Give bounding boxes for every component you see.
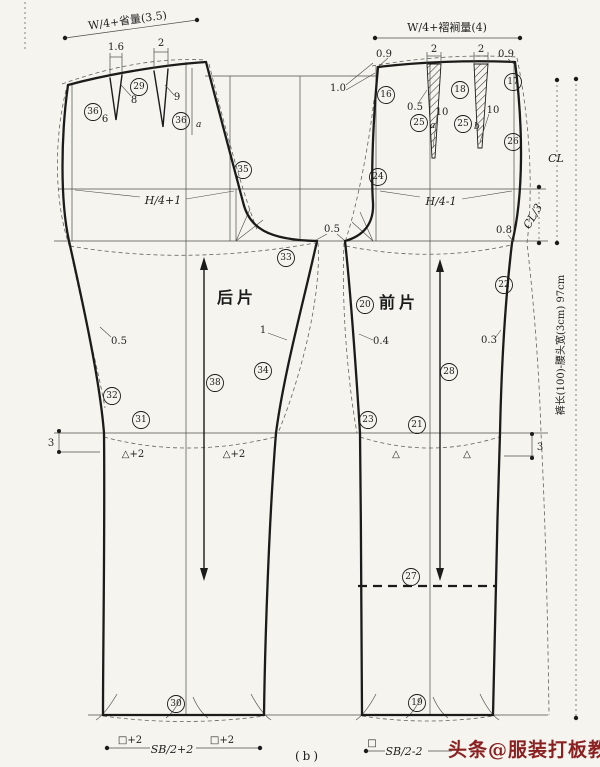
dim-dot — [537, 185, 541, 189]
right-dimensions: CL CL/3 裤长(100)-腰头宽(3cm) 97cm — [521, 77, 578, 720]
marker-30: 30 — [168, 696, 185, 713]
dim-dot — [574, 77, 578, 81]
marker-33: 33 — [278, 250, 295, 267]
front-seat-curve — [346, 245, 511, 254]
svg-text:38: 38 — [209, 378, 221, 388]
back-piece-label: 后片 — [217, 288, 257, 307]
back-piece — [63, 62, 318, 715]
knee-up-left: 3 — [48, 438, 54, 449]
svg-text:30: 30 — [170, 699, 182, 709]
step-markers-front: 16 18 17 25 a 25 b 26 24 20 22 28 23 21 … — [357, 74, 522, 712]
marker-18: 18 — [452, 82, 469, 99]
dim-dot — [57, 450, 61, 454]
marker-23: 23 — [360, 412, 377, 429]
back-side-seam — [63, 85, 105, 715]
front-hem-curve — [362, 716, 493, 721]
front-inseam-in: 0.4 — [373, 336, 389, 347]
pleat1-depth: 10 — [436, 107, 449, 118]
marker-25a: 25 — [411, 115, 428, 132]
point-a-front: a — [430, 121, 435, 131]
svg-text:23: 23 — [362, 415, 374, 425]
dim-dot — [105, 746, 109, 750]
back-hem-side-r: □+2 — [210, 735, 234, 746]
svg-text:36: 36 — [87, 107, 99, 117]
svg-text:31: 31 — [135, 415, 146, 425]
watermark: 头条@服装打板教程 — [448, 738, 600, 761]
svg-text:25: 25 — [413, 118, 425, 128]
svg-text:17: 17 — [507, 77, 519, 87]
back-grain-arrowhead-up — [200, 257, 208, 270]
front-knee-curve — [360, 437, 499, 448]
svg-text:34: 34 — [257, 366, 269, 376]
back-inseam-guide — [278, 243, 318, 433]
marker-16: 16 — [378, 87, 395, 104]
svg-text:21: 21 — [411, 420, 422, 430]
dim-dot — [530, 432, 534, 436]
back-dart1-width: 1.6 — [108, 42, 124, 53]
back-crotch-diagonal-1 — [236, 220, 263, 241]
svg-text:32: 32 — [106, 391, 117, 401]
leader-front-hip-r — [462, 191, 512, 199]
trouser-pattern-diagram: W/4+省量(3.5) W/4+褶裥量(4) — [0, 0, 600, 767]
pleat1-width: 2 — [431, 44, 437, 55]
front-grain-arrow — [436, 259, 444, 581]
leader-front-inseam — [359, 334, 373, 340]
front-piece-label: 前片 — [379, 293, 419, 312]
leader-back-side — [100, 327, 111, 337]
crotch-gap: 0.5 — [324, 224, 340, 235]
front-waist-seam — [378, 61, 515, 67]
marker-19: 19 — [409, 695, 426, 712]
figure-caption: (b) — [295, 749, 321, 763]
svg-text:35: 35 — [237, 165, 249, 175]
front-crotch-guide — [346, 100, 374, 239]
step-markers-back: 29 36 36 35 33 34 38 32 31 30 — [85, 79, 295, 713]
back-knee-curve — [104, 437, 275, 448]
pleat-offset: 0.5 — [407, 102, 423, 113]
marker-36-right: 36 — [173, 113, 190, 130]
svg-text:27: 27 — [405, 572, 417, 582]
leader-back-inseam — [268, 333, 287, 340]
front-inseam — [345, 241, 362, 715]
front-waist-dimension: W/4+褶裥量(4) — [373, 20, 522, 40]
svg-text:22: 22 — [498, 280, 509, 290]
back-seat-curve — [70, 243, 315, 255]
front-grain-arrowhead-down — [436, 568, 444, 581]
dashed-guides — [57, 56, 549, 721]
marker-25b: 25 — [455, 116, 472, 133]
front-piece — [345, 61, 521, 715]
back-dart2-depth: 9 — [174, 92, 180, 103]
svg-text:29: 29 — [133, 82, 145, 92]
dim-dot — [364, 749, 368, 753]
front-drop-left: 0.9 — [376, 49, 392, 60]
value-labels: 1.6 2 8 9 6 a 0.9 0.9 2 2 1.0 0.5 10 10 … — [48, 38, 543, 453]
back-dart1-depth: 8 — [131, 95, 137, 106]
leader-back-hip-r — [186, 191, 234, 199]
svg-text:25: 25 — [457, 119, 469, 129]
front-hip-formula: H/4-1 — [424, 195, 456, 208]
hem-dimensions: □+2 SB/2+2 □+2 □ SB/2-2 — [105, 735, 452, 758]
back-hem-side-l: □+2 — [118, 735, 142, 746]
front-waist-formula: W/4+褶裥量(4) — [407, 20, 487, 34]
leader-front-hip-l — [380, 191, 420, 197]
marker-28: 28 — [441, 364, 458, 381]
marker-17: 17 — [505, 74, 522, 91]
back-waist-formula: W/4+省量(3.5) — [87, 9, 167, 33]
front-side-crotch: 0.8 — [496, 225, 512, 236]
front-grain-arrowhead-up — [436, 259, 444, 272]
marker-38: 38 — [207, 375, 224, 392]
back-dart1-pos: 6 — [102, 114, 108, 125]
pleat2-width: 2 — [478, 44, 484, 55]
back-grain-arrowhead-down — [200, 568, 208, 581]
leader-0p5-pleat — [419, 90, 427, 102]
front-hem-side: □ — [367, 738, 376, 749]
back-hem-curve — [103, 716, 264, 722]
dim-dot — [555, 78, 559, 82]
knee-up-right: 3 — [537, 442, 543, 453]
svg-text:16: 16 — [380, 90, 392, 100]
marker-32: 32 — [104, 388, 121, 405]
front-knee-seg-r: △ — [463, 449, 471, 460]
marker-36-left: 36 — [85, 104, 102, 121]
back-dart-1 — [110, 75, 122, 120]
front-drop-right: 0.9 — [498, 49, 514, 60]
front-knee-seg-l: △ — [392, 449, 400, 460]
back-dart2-width: 2 — [158, 38, 164, 49]
trouser-length-label: 裤长(100)-腰头宽(3cm) 97cm — [554, 274, 567, 415]
marker-27: 27 — [403, 569, 420, 586]
back-cb-guide — [209, 64, 258, 232]
cl-label: CL — [548, 152, 564, 165]
marker-34: 34 — [255, 363, 272, 380]
front-hem-center: SB/2-2 — [385, 745, 422, 758]
svg-text:20: 20 — [359, 300, 371, 310]
dim-dot — [195, 18, 199, 22]
marker-21: 21 — [409, 417, 426, 434]
back-hem-center: SB/2+2 — [151, 743, 194, 756]
point-a-back: a — [196, 120, 201, 130]
back-dart-2 — [154, 69, 168, 127]
leader-1p0-a — [346, 63, 373, 85]
point-b-front: b — [474, 122, 480, 132]
marker-29: 29 — [131, 79, 148, 96]
svg-text:28: 28 — [443, 367, 455, 377]
back-inseam-in: 1 — [260, 325, 266, 336]
back-side-in: 0.5 — [111, 336, 127, 347]
marker-26: 26 — [505, 134, 522, 151]
dim-dot — [373, 36, 377, 40]
side-raise: 1.0 — [330, 83, 346, 94]
dim-dot — [63, 36, 67, 40]
dim-dot — [574, 716, 578, 720]
back-knee-seg-l: △+2 — [122, 449, 144, 460]
leader-back-hip-l — [75, 190, 140, 197]
marker-24: 24 — [370, 169, 387, 186]
svg-text:36: 36 — [175, 116, 187, 126]
dim-dot — [518, 36, 522, 40]
svg-text:26: 26 — [507, 137, 519, 147]
marker-35: 35 — [235, 162, 252, 179]
back-side-guide — [57, 90, 105, 408]
dim-dot — [57, 429, 61, 433]
svg-text:18: 18 — [454, 85, 466, 95]
front-inseam-guide — [343, 243, 357, 433]
back-hip-formula: H/4+1 — [144, 194, 182, 207]
dim-dot — [537, 241, 541, 245]
svg-text:24: 24 — [372, 172, 384, 182]
back-waist-dimension: W/4+省量(3.5) — [63, 9, 199, 41]
pleat2-depth: 10 — [487, 105, 500, 116]
marker-22: 22 — [496, 277, 513, 294]
svg-text:33: 33 — [280, 253, 292, 263]
front-side-in: 0.3 — [481, 335, 497, 346]
back-inseam — [264, 241, 317, 715]
back-grain-arrow — [200, 257, 208, 581]
dim-dot — [258, 746, 262, 750]
front-side-seam — [493, 62, 521, 715]
dim-dot — [530, 456, 534, 460]
leader-8 — [121, 85, 131, 96]
marker-20: 20 — [357, 297, 374, 314]
dim-dot — [555, 241, 559, 245]
marker-31: 31 — [133, 412, 150, 429]
back-knee-seg-r: △+2 — [223, 449, 245, 460]
cl-third-label: CL/3 — [521, 202, 545, 231]
svg-text:19: 19 — [411, 698, 423, 708]
